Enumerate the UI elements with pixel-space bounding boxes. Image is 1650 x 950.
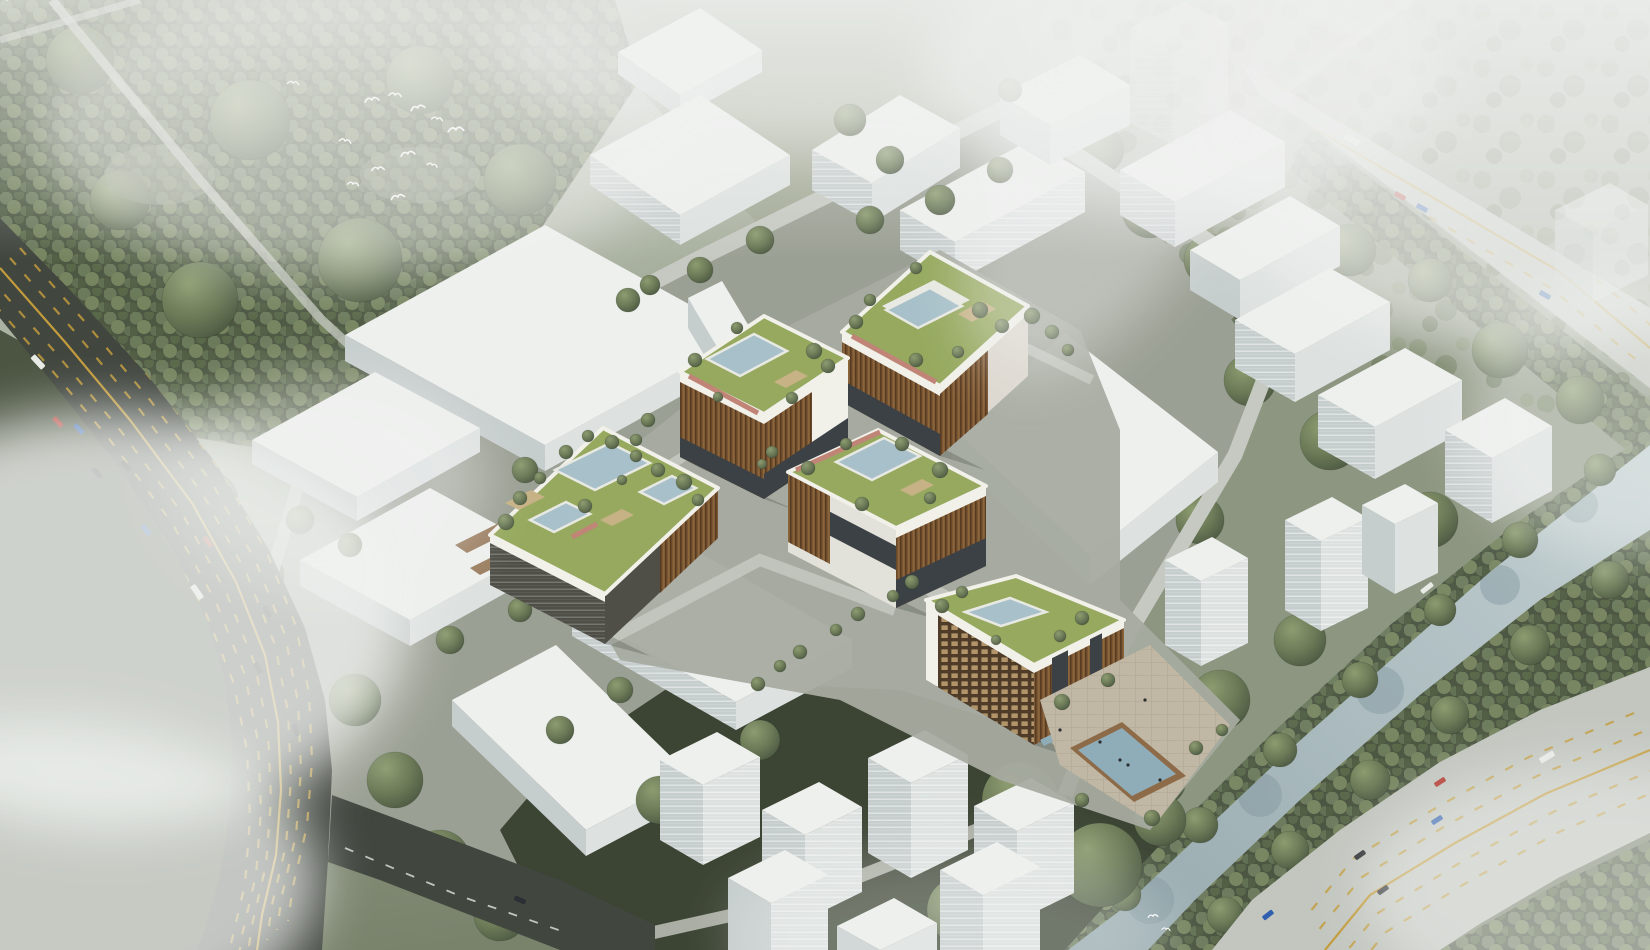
massing-block — [1165, 537, 1248, 666]
massing-block — [1285, 497, 1368, 631]
architectural-rendering — [0, 0, 1650, 950]
massing-block — [1362, 484, 1438, 594]
